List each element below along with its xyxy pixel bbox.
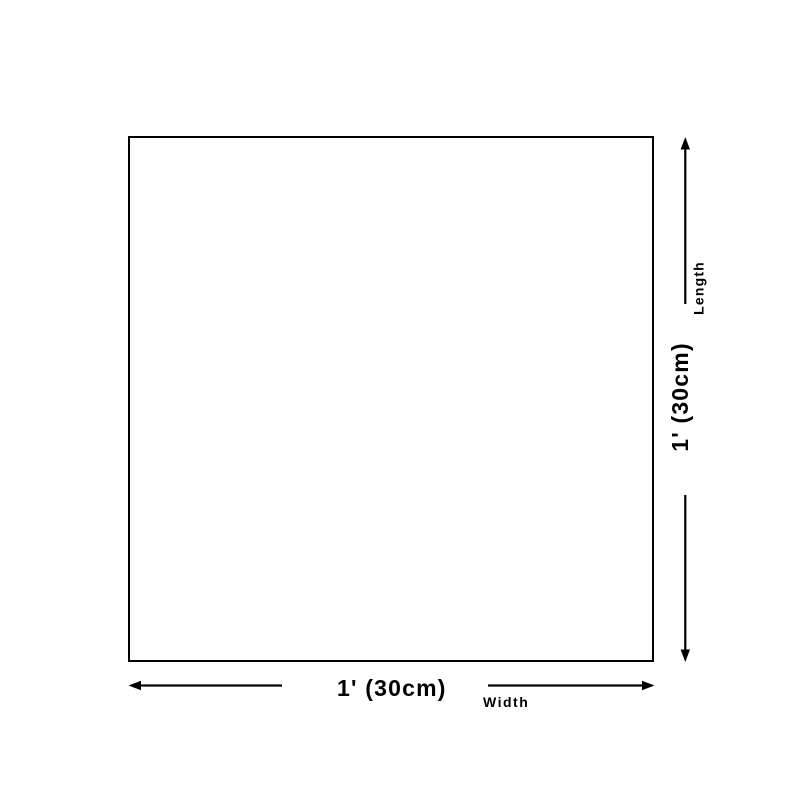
svg-text:Length: Length — [690, 261, 706, 315]
svg-text:1' (30cm): 1' (30cm) — [667, 342, 693, 452]
